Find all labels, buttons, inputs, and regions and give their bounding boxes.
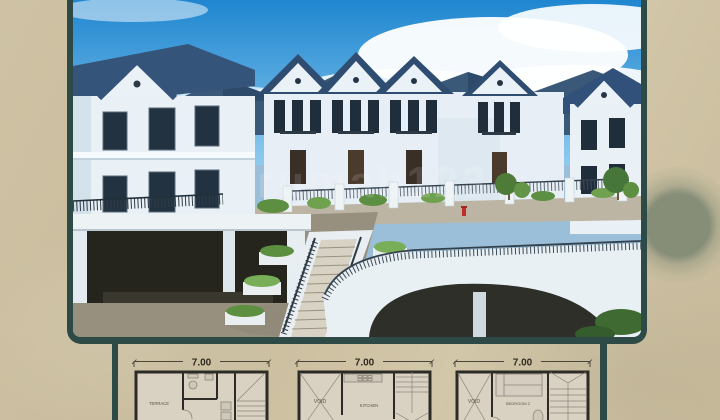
floorplan-bedroom: 7.00	[452, 355, 593, 420]
room-label: VOID	[468, 399, 481, 405]
floorplan-terrace: 7.00	[131, 355, 272, 420]
hydrant	[461, 206, 467, 208]
floorplan-kitchen: 7.00	[294, 355, 435, 420]
plan-outline	[136, 372, 267, 420]
plan-fixtures	[344, 374, 382, 382]
photo-frame: ⌂rumah123	[67, 0, 647, 344]
room-label: TERRACE	[149, 401, 169, 406]
flyer-stage: ⌂rumah123 7.00	[0, 0, 720, 420]
dimension-label: 7.00	[513, 358, 533, 369]
floorplans-row: 7.00	[0, 355, 720, 420]
room-label: KITCHEN	[360, 403, 378, 408]
dimension-label: 7.00	[192, 358, 212, 369]
bed	[496, 374, 542, 396]
dimension-label: 7.00	[355, 358, 375, 369]
property-photo	[73, 0, 641, 337]
room-label: VOID	[314, 399, 327, 405]
room-label: BEDROOM 2	[506, 401, 531, 406]
bridge	[323, 241, 641, 337]
